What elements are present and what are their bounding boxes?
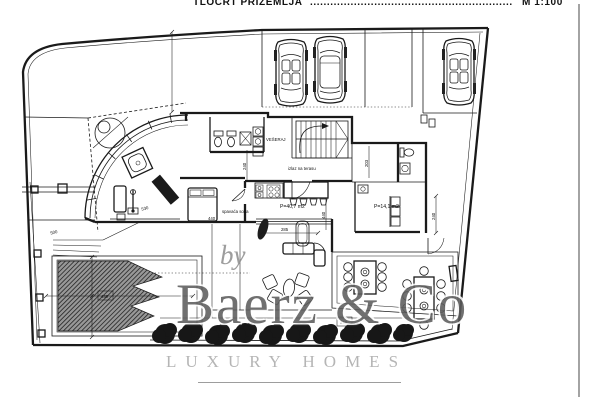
scale-label: M 1:100 [522,0,563,8]
watermark-tagline: LUXURY HOMES [166,352,407,372]
building-walls [85,113,426,252]
dim-east-v: 240 [431,212,436,220]
lounger [114,186,126,220]
room-label-bedroom: spavaća soba [222,209,249,214]
plant [255,217,270,241]
staircase [296,121,348,158]
outdoor-spa [122,147,153,178]
title-leader: ........................................… [310,0,513,8]
dim-stair-v: 203 [364,159,369,167]
dim-bench: 530 [141,205,150,212]
terrace-planter [93,117,128,148]
car-icon [274,40,308,107]
dim-hall-v: 240 [242,162,247,170]
bush-icon [152,323,177,344]
bathroom-fixtures [214,131,251,147]
floor-plan-page: TLOCRT PRIZEMLJA .......................… [0,0,600,400]
pool-steps [53,222,140,257]
plan-title: TLOCRT PRIZEMLJA [193,0,303,8]
room-label-laundry: VEŠERAJ [266,137,286,142]
room-label-hall: izlaz na terasu [288,166,316,171]
floor-plan-drawing: TLOCRT PRIZEMLJA .......................… [0,0,600,400]
watermark-brand: Baerz & Co [176,272,468,337]
dim-living-v: 440 [321,211,326,219]
watermark-rule [198,382,401,383]
area-label-living: P=40,7 m2 [280,204,305,210]
watermark-by: by [220,240,245,271]
car-icon [313,37,347,104]
dim-terrace: 285 [281,227,289,232]
right-bathroom [400,148,414,174]
area-label-side: P=14,1 m2 [374,204,399,210]
dim-pool-box: 440 [101,294,109,299]
dark-slab [152,175,180,205]
kitchen [255,182,328,205]
dim-pool-width: 500 [50,229,59,236]
car-icon [442,39,476,106]
sheet-title: TLOCRT PRIZEMLJA .......................… [193,0,563,8]
door-swings [232,181,444,254]
coffee-table [296,221,309,246]
sofa [283,243,325,266]
dim-bed: 440 [208,216,216,221]
umbrella-stand [128,190,138,215]
